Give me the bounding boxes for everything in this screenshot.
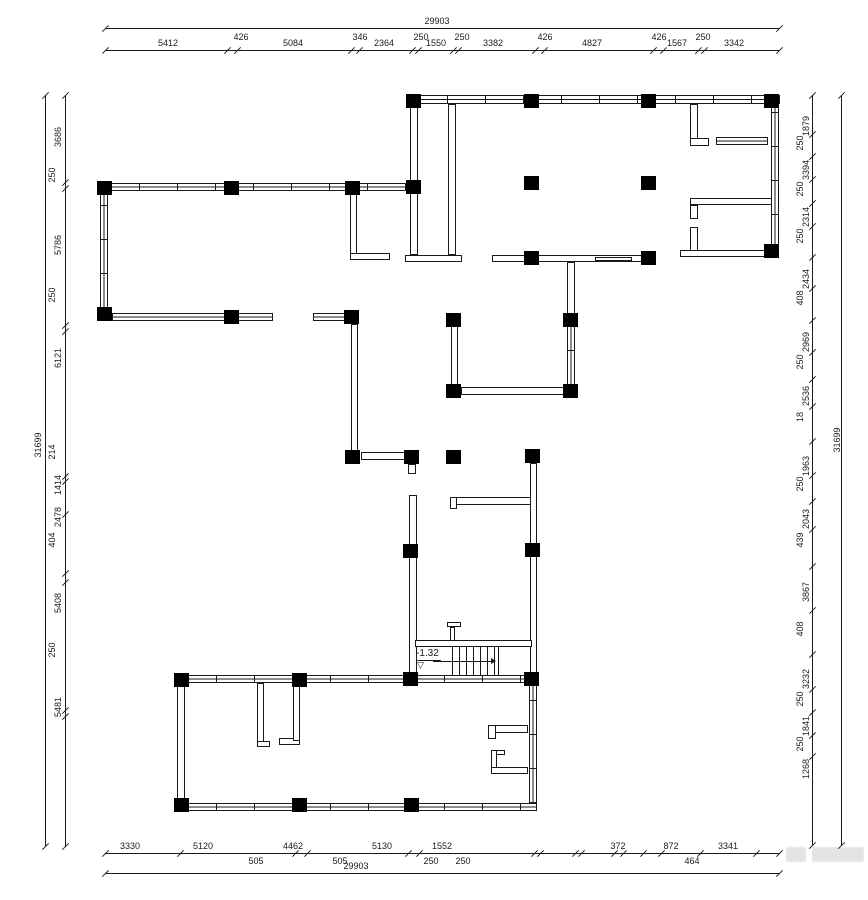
dim-label: 1879 <box>801 116 811 136</box>
dim-label: 404 <box>47 532 57 547</box>
dim-label: 5120 <box>193 841 213 851</box>
wall-segment <box>771 104 779 250</box>
column <box>524 672 539 686</box>
dim-label: 2364 <box>374 38 394 48</box>
dimension-tick <box>42 843 49 850</box>
dim-label: 250 <box>423 856 438 866</box>
column <box>224 310 239 324</box>
dim-label: 1567 <box>667 38 687 48</box>
wall-segment <box>451 326 458 386</box>
wall-segment <box>450 627 455 641</box>
dim-label: 4462 <box>283 841 303 851</box>
dim-label: 250 <box>47 167 57 182</box>
wall-segment <box>405 255 462 262</box>
dim-label: 2043 <box>801 509 811 529</box>
dim-label: 6121 <box>53 348 63 368</box>
column <box>764 244 779 258</box>
wall-segment <box>450 497 457 509</box>
watermark <box>786 845 868 865</box>
wall-segment <box>567 326 575 386</box>
dim-label: 5130 <box>372 841 392 851</box>
column <box>97 307 112 321</box>
column <box>224 181 239 195</box>
wall-segment <box>529 683 537 804</box>
dim-label: 1552 <box>432 841 452 851</box>
wall-segment <box>350 253 390 260</box>
wall-segment <box>680 250 772 257</box>
wall-segment <box>690 227 698 251</box>
wall-segment <box>408 95 780 104</box>
dim-label: 250 <box>795 476 805 491</box>
dim-label: 1963 <box>801 456 811 476</box>
wall-segment <box>361 452 406 460</box>
column <box>563 313 578 327</box>
column <box>403 544 418 558</box>
dim-label: 1268 <box>801 759 811 779</box>
column <box>174 673 189 687</box>
wall-segment <box>112 313 273 321</box>
wall-segment <box>177 675 537 683</box>
wall-segment <box>461 387 564 395</box>
dimension-line <box>841 95 842 845</box>
column <box>345 450 360 464</box>
dim-label: 5412 <box>158 38 178 48</box>
dim-label: 1841 <box>801 716 811 736</box>
wall-segment <box>595 257 632 261</box>
dimension-tick <box>776 25 783 32</box>
dim-label: 872 <box>663 841 678 851</box>
dim-label: 408 <box>795 621 805 636</box>
dim-label: 426 <box>537 32 552 42</box>
dim-label: 250 <box>47 642 57 657</box>
dim-label: 408 <box>795 290 805 305</box>
wall-segment <box>408 464 416 474</box>
dim-label: 3232 <box>801 669 811 689</box>
dim-label: 18 <box>795 412 805 422</box>
dim-label: 250 <box>795 135 805 150</box>
dimension-line <box>105 873 779 874</box>
column <box>292 673 307 687</box>
dim-label: 2536 <box>801 386 811 406</box>
column <box>446 450 461 464</box>
column <box>641 176 656 190</box>
dim-label: 250 <box>47 287 57 302</box>
dim-label: 426 <box>651 32 666 42</box>
column <box>563 384 578 398</box>
column <box>97 181 112 195</box>
dim-label: 1550 <box>426 38 446 48</box>
dimension-tick <box>776 47 783 54</box>
dim-label: 3341 <box>718 841 738 851</box>
wall-segment <box>100 191 108 309</box>
wall-segment <box>415 640 532 647</box>
column <box>641 251 656 265</box>
dim-label: 3686 <box>53 127 63 147</box>
dim-label: 505 <box>248 856 263 866</box>
dim-label: 250 <box>795 691 805 706</box>
column <box>525 449 540 463</box>
column <box>344 310 359 324</box>
wall-segment <box>716 137 768 145</box>
column <box>446 313 461 327</box>
dim-label: 250 <box>695 32 710 42</box>
column <box>446 384 461 398</box>
stair-direction-line <box>433 661 493 662</box>
dim-label: 426 <box>233 32 248 42</box>
dim-label: 2434 <box>801 269 811 289</box>
dim-label: 250 <box>795 736 805 751</box>
wall-segment <box>448 104 456 255</box>
column <box>404 798 419 812</box>
dimension-line <box>105 853 779 854</box>
dimension-line <box>105 28 779 29</box>
dim-label: 5084 <box>283 38 303 48</box>
dim-label: 3394 <box>801 160 811 180</box>
wall-segment <box>100 183 414 191</box>
dim-label: 4827 <box>582 38 602 48</box>
column <box>524 94 539 108</box>
wall-segment <box>690 104 698 142</box>
watermark-block <box>786 847 806 862</box>
dim-label: 250 <box>795 228 805 243</box>
dimension-line <box>65 95 66 846</box>
wall-segment <box>690 138 709 146</box>
wall-segment <box>313 313 346 321</box>
dim-label: 250 <box>795 181 805 196</box>
column <box>525 543 540 557</box>
stair-direction-arrow-icon <box>491 658 496 664</box>
dim-label: 346 <box>352 32 367 42</box>
dim-label: 3330 <box>120 841 140 851</box>
dim-label: 3867 <box>801 582 811 602</box>
dim-label: 2969 <box>801 332 811 352</box>
dim-label: 439 <box>795 532 805 547</box>
wall-segment <box>567 262 575 316</box>
wall-segment <box>690 198 772 205</box>
column <box>292 798 307 812</box>
dim-label: 214 <box>47 444 57 459</box>
column <box>641 94 656 108</box>
dim-label: 250 <box>454 32 469 42</box>
wall-segment <box>488 725 496 739</box>
dimension-tick <box>776 870 783 877</box>
column <box>174 798 189 812</box>
wall-segment <box>177 803 537 811</box>
column <box>345 181 360 195</box>
dim-label: 5481 <box>53 697 63 717</box>
wall-segment <box>491 767 528 774</box>
wall-segment <box>350 191 357 254</box>
wall-segment <box>257 683 264 745</box>
column <box>406 94 421 108</box>
dim-label: 250 <box>455 856 470 866</box>
wall-segment <box>177 683 185 804</box>
column <box>524 251 539 265</box>
column <box>524 176 539 190</box>
dimension-line <box>105 50 779 51</box>
dim-total-top: 29903 <box>424 16 449 26</box>
level-marker-icon: ▽ <box>417 660 424 670</box>
dimension-tick <box>62 843 69 850</box>
dim-label: 250 <box>795 354 805 369</box>
dim-label: 505 <box>332 856 347 866</box>
wall-segment <box>690 205 698 219</box>
dim-label: 2314 <box>801 207 811 227</box>
dim-label: 5786 <box>53 235 63 255</box>
dim-label: 3382 <box>483 38 503 48</box>
column <box>406 180 421 194</box>
column <box>764 94 779 108</box>
column <box>403 672 418 686</box>
dim-total-left: 31699 <box>33 432 43 457</box>
dim-label: 2478 <box>53 507 63 527</box>
wall-segment <box>293 683 300 741</box>
wall-segment <box>257 741 270 747</box>
dim-label: 5408 <box>53 593 63 613</box>
dimension-tick <box>776 850 783 857</box>
wall-segment <box>450 497 532 505</box>
dim-label: 3342 <box>724 38 744 48</box>
dimension-line <box>45 95 46 846</box>
column <box>404 450 419 464</box>
dim-label: 372 <box>610 841 625 851</box>
dim-label: 464 <box>684 856 699 866</box>
wall-segment <box>351 324 358 452</box>
floor-plan-canvas: 29903 29903 31699 31699 -1.32 ▽ 54124265… <box>0 0 868 900</box>
dim-label: 1414 <box>53 475 63 495</box>
